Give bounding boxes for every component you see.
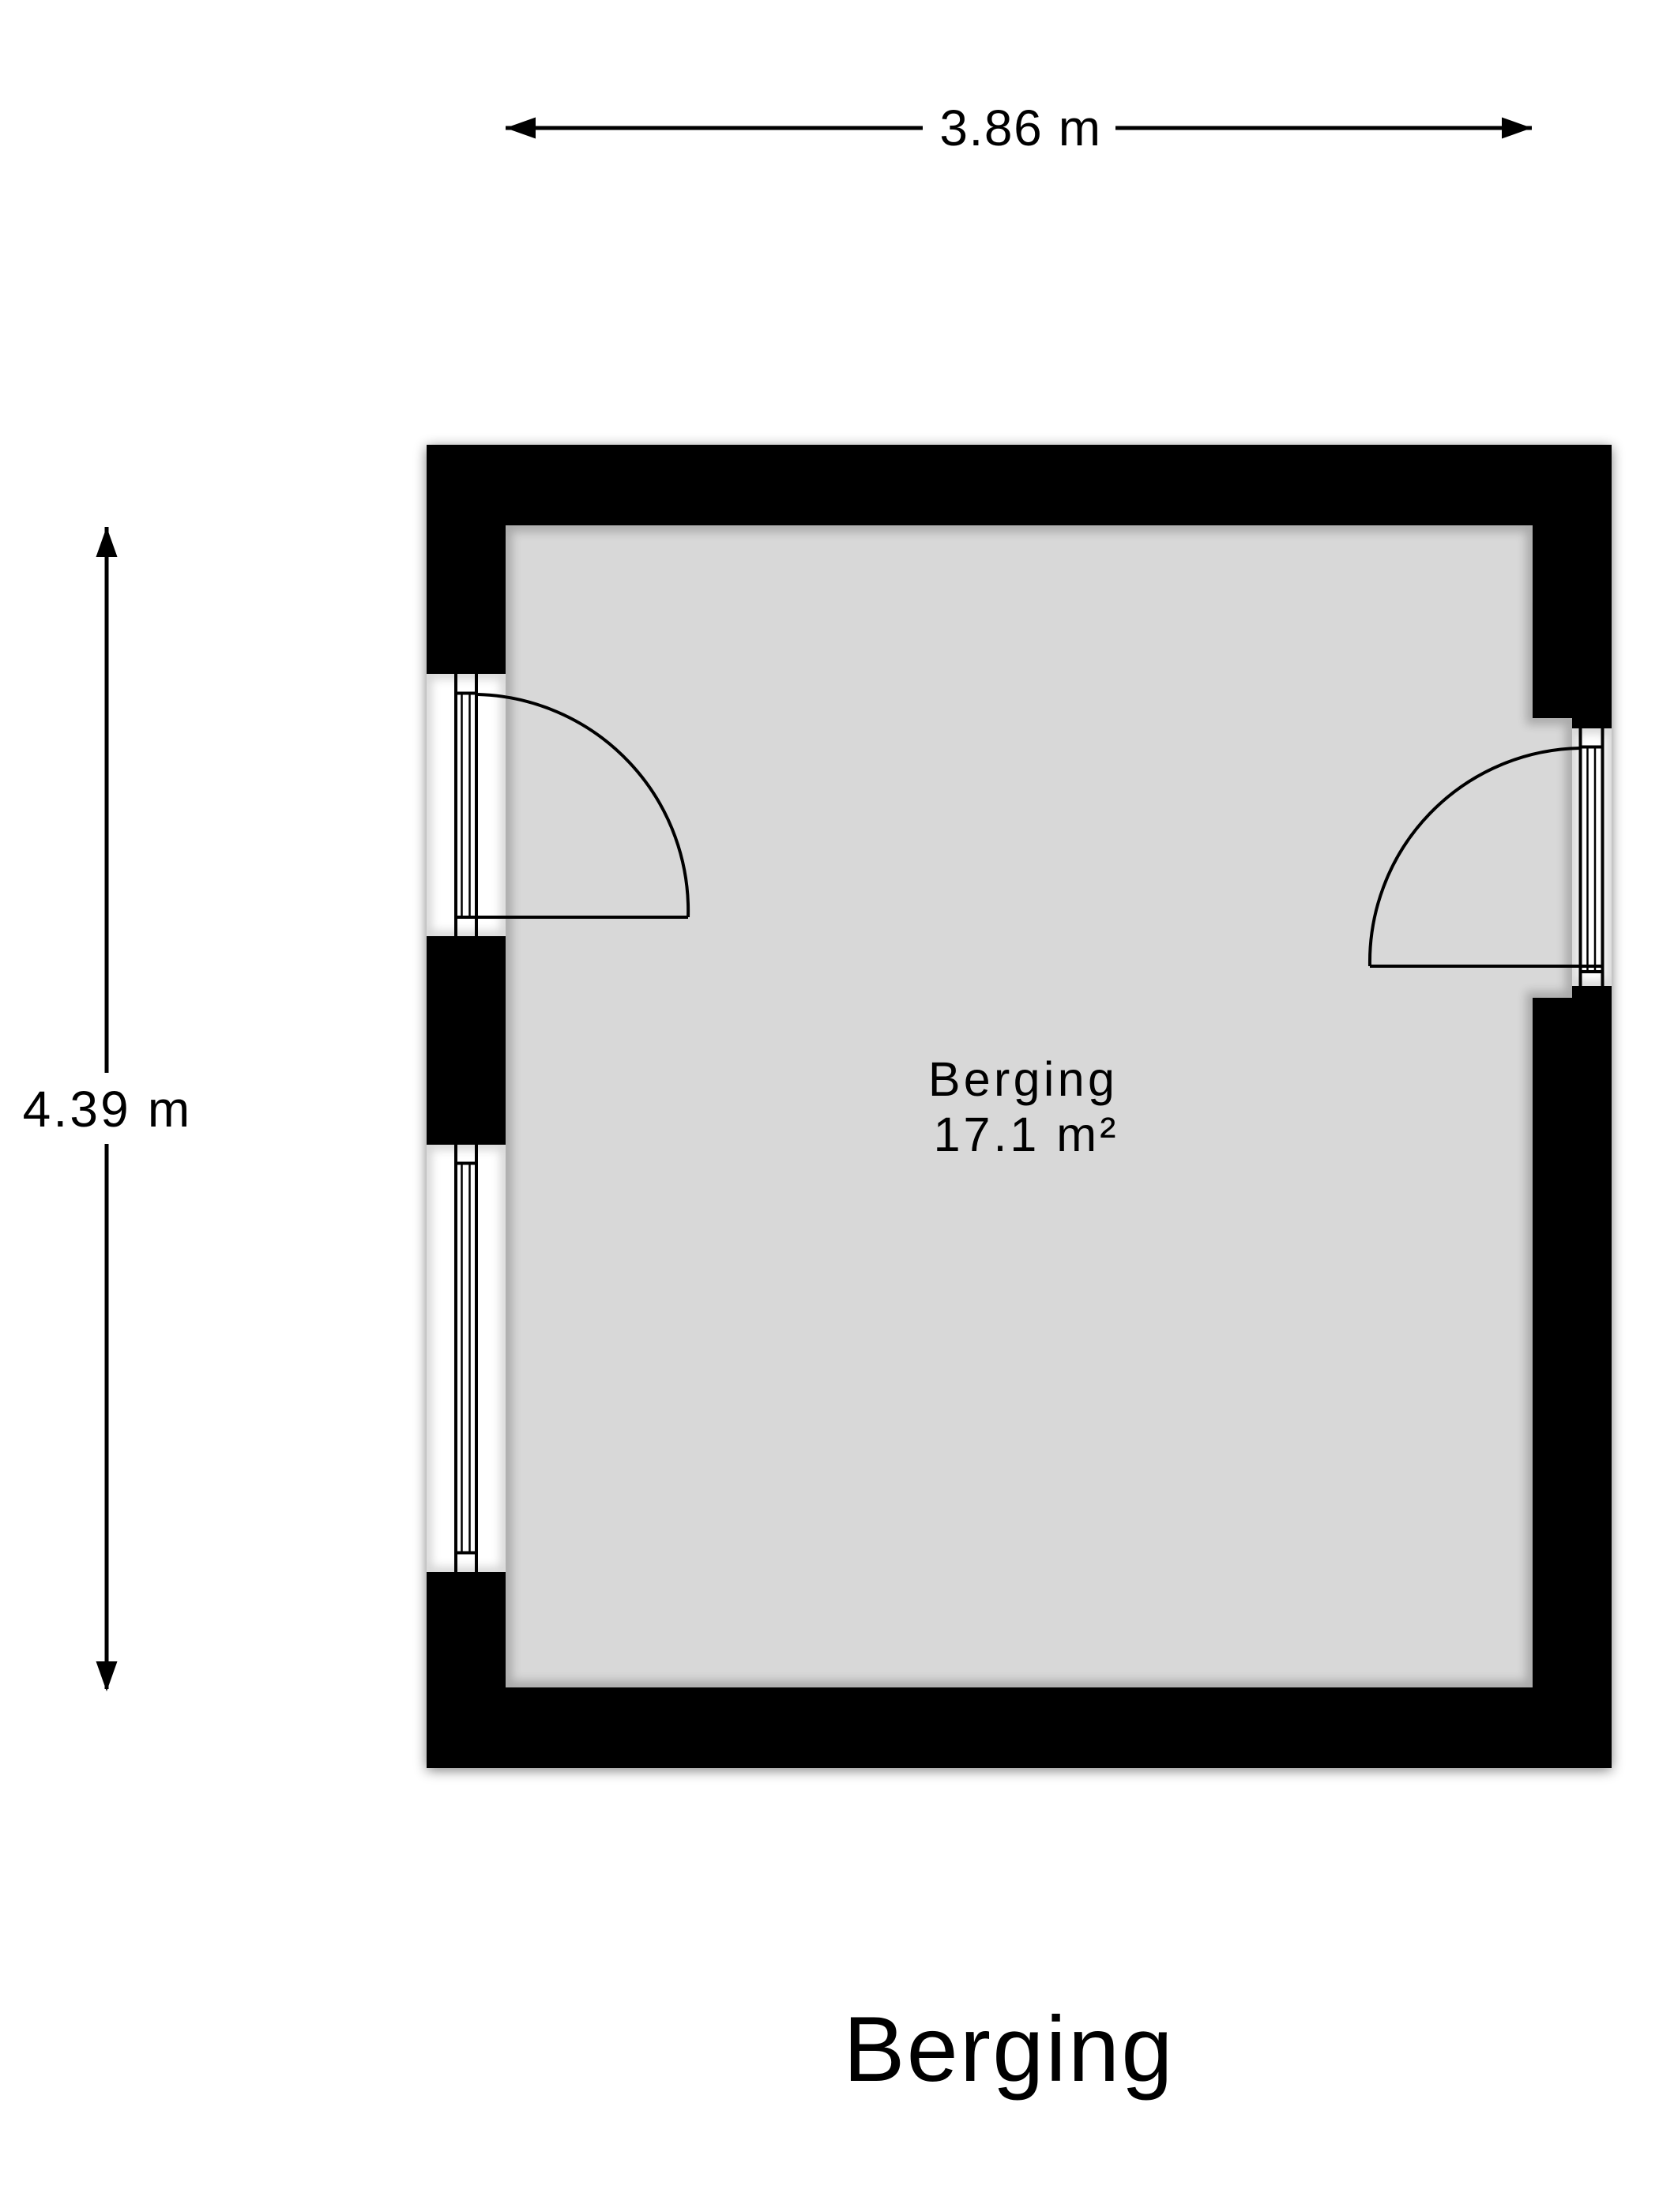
svg-text:Berging: Berging [928, 1052, 1118, 1106]
svg-text:17.1 m²: 17.1 m² [934, 1108, 1119, 1161]
svg-text:Berging: Berging [843, 1997, 1174, 2101]
svg-text:4.39 m: 4.39 m [23, 1081, 193, 1138]
svg-text:3.86 m: 3.86 m [939, 100, 1101, 156]
